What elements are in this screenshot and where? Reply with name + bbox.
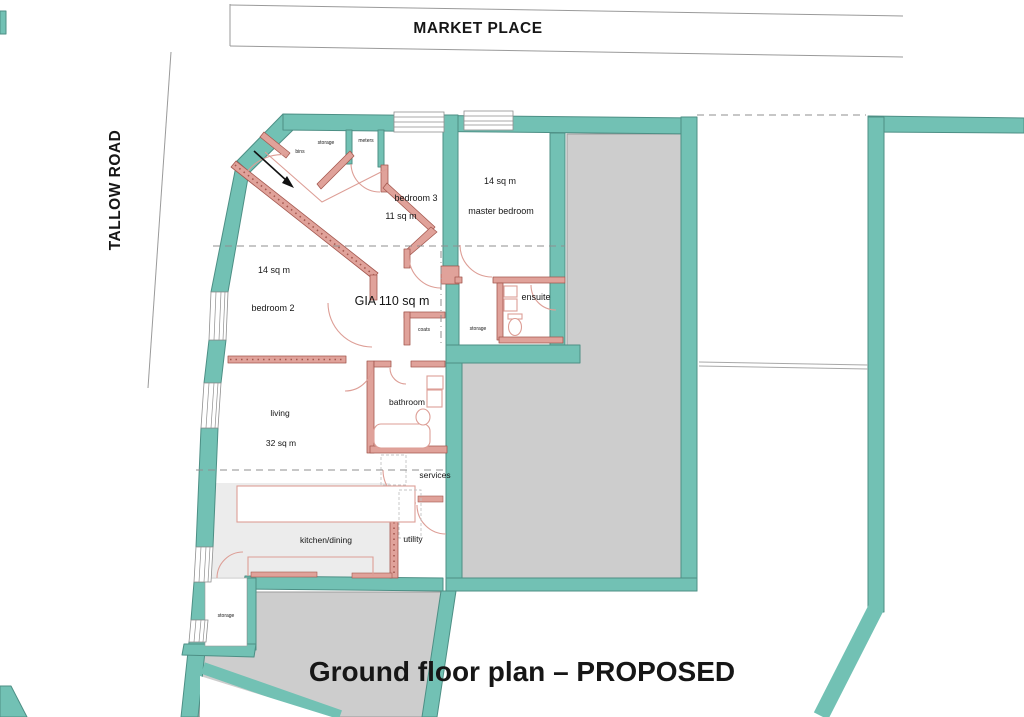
tallow-road-label: TALLOW ROAD xyxy=(107,130,124,251)
ensuite-bottom-wall xyxy=(499,337,563,343)
bedroom3-chamfer-wall xyxy=(317,151,354,189)
utility-shelf xyxy=(418,496,443,502)
ensuite-basin xyxy=(504,286,517,297)
street-market-place: MARKET PLACE xyxy=(230,4,903,57)
ensuite-shower xyxy=(504,299,517,311)
label-ensuite: ensuite xyxy=(521,292,550,302)
label-services: services xyxy=(419,470,450,480)
bathroom-north-wall-a xyxy=(374,361,391,367)
coats-left-wall xyxy=(404,312,410,345)
ensuite-toilet xyxy=(509,319,522,336)
ensuite-south-wall xyxy=(446,345,580,363)
master-south-wall-east xyxy=(493,277,565,283)
bathroom-cistern xyxy=(427,390,442,407)
master-south-wall-west xyxy=(455,277,462,283)
kitchen-window-sill-b xyxy=(352,573,392,578)
tallow-road-edge xyxy=(148,52,171,388)
rear-boundary-line-a xyxy=(699,362,868,365)
west-wall-seg1 xyxy=(211,161,249,292)
east-building-west-wall xyxy=(868,117,884,612)
label-living-area: 32 sq m xyxy=(266,438,296,448)
storage-east-wall xyxy=(247,578,256,650)
label-bedroom3-area: 11 sq m xyxy=(385,211,416,221)
dining-table xyxy=(237,486,415,522)
floor-plan-page: MARKET PLACE TALLOW ROAD xyxy=(0,0,1024,717)
spine-wall-upper xyxy=(443,115,458,266)
market-place-bottom-edge xyxy=(230,46,903,57)
ground-storage-room xyxy=(205,578,247,646)
bathroom-north-wall-b xyxy=(411,361,445,367)
bathroom-toilet xyxy=(416,409,430,425)
label-master: master bedroom xyxy=(468,206,534,216)
bathroom-basin-unit xyxy=(427,376,443,389)
east-building-north-wall xyxy=(868,116,1024,133)
market-place-top-edge xyxy=(230,5,903,16)
label-ground-storage: storage xyxy=(218,613,235,619)
site-wall-bottom-left-mark xyxy=(0,686,27,717)
meters-door-swing xyxy=(351,164,380,192)
bedroom2-door-swing xyxy=(328,303,372,347)
label-bins: bins xyxy=(295,149,305,155)
courtyard-west-wall xyxy=(550,133,565,345)
entrance-arrow xyxy=(254,151,287,181)
ensuite-divider-wall xyxy=(497,283,503,340)
plan-title: Ground floor plan – PROPOSED xyxy=(309,656,735,687)
bedroom3-southwest-wall xyxy=(383,183,435,232)
site-wall-top-left-mark xyxy=(0,11,6,34)
courtyard-south-wall xyxy=(446,578,697,591)
bedroom2-south-wall xyxy=(228,356,346,363)
label-bathroom: bathroom xyxy=(389,397,425,407)
label-entrance-storage: storage xyxy=(318,140,335,146)
label-bedroom2: bedroom 2 xyxy=(251,303,294,313)
rear-boundary-line-b xyxy=(699,366,868,369)
label-kitchen: kitchen/dining xyxy=(300,535,352,545)
label-hall-storage: storage xyxy=(470,326,487,332)
floor-plan-drawing: MARKET PLACE TALLOW ROAD xyxy=(0,0,1024,717)
label-coats: coats xyxy=(418,327,430,333)
courtyard-east-wall xyxy=(681,117,697,591)
label-living: living xyxy=(270,408,290,418)
meters-closet-right-stub xyxy=(378,130,384,167)
label-meters: meters xyxy=(358,138,374,144)
label-gia: GIA 110 sq m xyxy=(355,294,430,308)
bathtub xyxy=(374,424,430,448)
kitchen-window xyxy=(194,547,213,582)
west-wall-seg2 xyxy=(204,340,226,383)
bathroom-door-swing xyxy=(390,368,406,384)
master-bedroom-window xyxy=(464,111,513,130)
label-master-area: 14 sq m xyxy=(484,176,516,186)
living-window xyxy=(201,383,221,428)
label-bedroom2-area: 14 sq m xyxy=(258,265,290,275)
master-door-swing xyxy=(460,245,492,277)
label-utility: utility xyxy=(403,534,423,544)
bedroom3-door-swing xyxy=(409,256,441,288)
kitchen-south-wall xyxy=(243,576,443,591)
kitchen-window-sill-a xyxy=(251,572,317,577)
east-building-diagonal-wall xyxy=(821,608,876,716)
label-bedroom3: bedroom 3 xyxy=(394,193,437,203)
market-place-label: MARKET PLACE xyxy=(413,20,542,37)
spine-wall-mid xyxy=(446,284,459,346)
bedroom2-window xyxy=(209,292,228,340)
storage-window xyxy=(189,620,208,642)
street-tallow-road: TALLOW ROAD xyxy=(107,52,171,388)
